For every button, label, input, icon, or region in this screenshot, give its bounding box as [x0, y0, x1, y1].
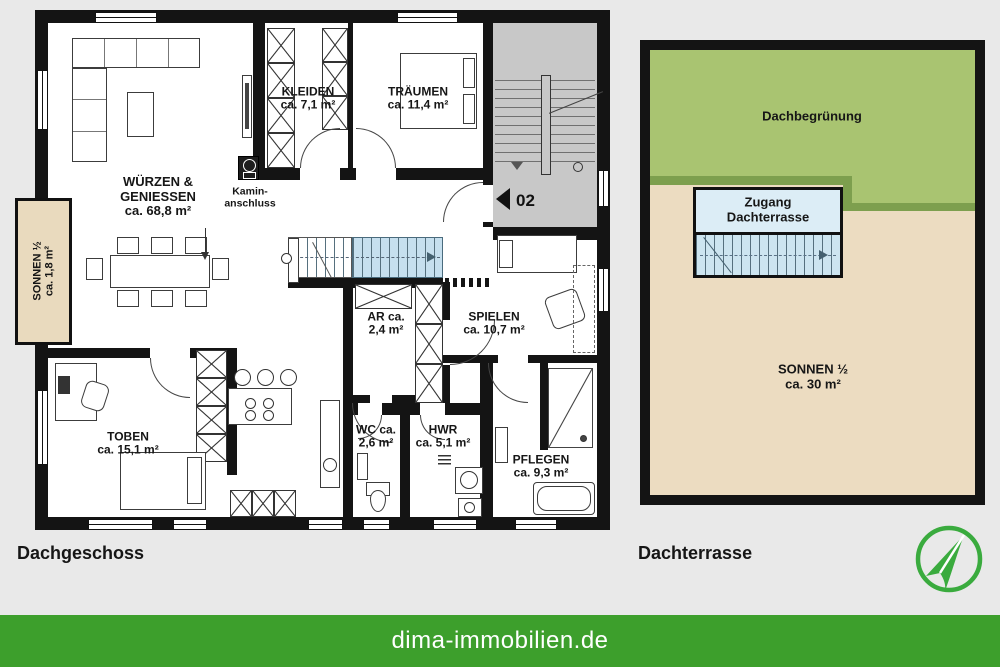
bed-pillow — [499, 240, 513, 268]
room-label-traeumen: TRÄUMEN ca. 11,4 m² — [388, 86, 449, 113]
window — [515, 519, 557, 530]
green-roof-edge — [852, 203, 975, 211]
chimney-label-line: Kamin- — [224, 186, 275, 198]
railing-tick — [461, 278, 465, 287]
bed-pillow — [463, 94, 475, 124]
flow-arrowhead — [201, 252, 209, 260]
wall-ar-bottom — [392, 395, 415, 403]
kitchen-cabinet-cell — [252, 490, 274, 517]
bar-stool — [280, 369, 297, 386]
window — [433, 519, 477, 530]
terrace-access-label: Zugang Dachterrasse — [727, 195, 809, 224]
window — [598, 170, 609, 207]
wardrobe-cell — [196, 350, 227, 378]
stove-burner — [263, 410, 274, 421]
wall-toben-top — [48, 348, 150, 358]
room-name: PFLEGEN — [513, 454, 570, 467]
wall-hall-segment — [253, 168, 300, 180]
kitchen-cabinet-cell — [230, 490, 252, 517]
green-roof-area — [852, 176, 975, 203]
room-label-spielen: SPIELEN ca. 10,7 m² — [463, 311, 524, 338]
green-roof-edge — [650, 176, 845, 185]
chimney-label-line: anschluss — [224, 198, 275, 210]
footer-bar: dima-immobilien.de — [0, 615, 1000, 667]
stove-burner — [263, 398, 274, 409]
wall-spielen-left — [443, 365, 450, 403]
bar-stool — [257, 369, 274, 386]
wardrobe-cell — [415, 364, 443, 403]
caption-dachgeschoss: Dachgeschoss — [17, 543, 144, 564]
shelf-icon — [438, 455, 451, 465]
room-label-ar: AR ca. 2,4 m² — [367, 311, 404, 338]
coffee-table — [127, 92, 154, 137]
room-label-wc: WC ca. 2,6 m² — [356, 424, 396, 451]
room-name: SPIELEN — [463, 311, 524, 324]
wall-hall-segment — [340, 168, 356, 180]
window — [88, 519, 153, 530]
wall-shower — [540, 363, 548, 450]
dining-chair — [117, 237, 139, 254]
washing-machine-drum — [460, 471, 478, 489]
desk-outline — [573, 265, 595, 353]
chimney-flue-icon — [243, 159, 256, 172]
chimney-block — [238, 156, 259, 180]
chimney-label: Kamin- anschluss — [224, 186, 275, 210]
dining-chair — [86, 258, 103, 280]
wc-sink — [357, 453, 368, 480]
wardrobe-cell — [415, 284, 443, 324]
green-roof-edge — [843, 176, 852, 211]
wall-stairwell-left — [483, 222, 493, 227]
railing-tick — [485, 278, 489, 287]
stairs-direction-arrow — [427, 252, 436, 262]
window — [173, 519, 207, 530]
stairwell-direction-arrow — [511, 162, 523, 170]
floorplan-page: 02 SONNEN ½ ca. 1,8 m² WÜRZEN & GENIESSE… — [0, 0, 1000, 667]
sofa-vertical — [72, 68, 107, 162]
wall-spielen-pflegen — [528, 355, 597, 363]
dining-table — [110, 255, 210, 288]
wall-wc-hwr — [400, 403, 410, 517]
sofa-horizontal — [72, 38, 200, 68]
window — [363, 519, 390, 530]
unit-number: 02 — [516, 191, 535, 211]
stairs-centerline — [700, 255, 835, 256]
green-roof-label-text: Dachbegrünung — [762, 109, 862, 124]
hwr-sink-basin — [464, 502, 475, 513]
room-area: ca. 5,1 m² — [416, 437, 471, 450]
room-area: 2,6 m² — [356, 437, 396, 450]
stove-burner — [245, 410, 256, 421]
terrace-label-name: SONNEN ½ — [778, 362, 848, 377]
window — [37, 390, 48, 465]
room-name: WÜRZEN & — [120, 175, 196, 190]
room-area: ca. 9,3 m² — [513, 467, 570, 480]
kitchen-tall-counter — [320, 400, 340, 488]
wall-ar-bottom — [353, 395, 370, 403]
room-area: 2,4 m² — [367, 324, 404, 337]
dining-chair — [212, 258, 229, 280]
footer-website[interactable]: dima-immobilien.de — [391, 627, 608, 655]
dining-chair — [185, 290, 207, 307]
window — [397, 12, 458, 23]
kitchen-cabinet-cell — [274, 490, 296, 517]
chimney-base-icon — [243, 172, 256, 179]
stove-burner — [245, 398, 256, 409]
railing-tick — [445, 278, 449, 287]
wardrobe-cell — [267, 28, 295, 63]
flow-arrow — [205, 228, 206, 254]
room-area: ca. 15,1 m² — [97, 444, 158, 457]
terrace-sun-label: SONNEN ½ ca. 30 m² — [778, 362, 848, 391]
room-name: WC ca. — [356, 424, 396, 437]
room-label-pflegen: PFLEGEN ca. 9,3 m² — [513, 454, 570, 481]
wall-hall-segment — [396, 168, 483, 180]
room-area: ca. 68,8 m² — [120, 204, 196, 219]
room-area: ca. 11,4 m² — [388, 99, 449, 112]
unit-entrance-arrow-icon — [496, 188, 510, 210]
room-name: GENIESSEN — [120, 190, 196, 205]
wardrobe-cell — [267, 133, 295, 168]
stairwell-stairs-left-flight — [495, 80, 541, 170]
bed-pillow — [463, 58, 475, 88]
storage-cell — [355, 284, 412, 309]
green-roof-label: Dachbegrünung — [762, 110, 862, 125]
terrace-label-area: ca. 30 m² — [778, 377, 848, 392]
tv-screen — [245, 83, 249, 129]
bed-pillow — [187, 457, 202, 504]
room-name: TRÄUMEN — [388, 86, 449, 99]
stairwell-handrail-post — [573, 162, 583, 172]
balcony-label: SONNEN ½ ca. 1,8 m² — [32, 241, 57, 300]
pc-monitor — [58, 376, 70, 394]
wardrobe-cell — [196, 406, 227, 434]
north-arrow-icon — [911, 521, 987, 597]
shower-drain — [580, 435, 587, 442]
room-name: TOBEN — [97, 431, 158, 444]
railing-tick — [477, 278, 481, 287]
railing-tick — [453, 278, 457, 287]
terrace-access-stairs — [696, 235, 840, 275]
kitchen-sink — [323, 458, 337, 472]
caption-dachterrasse: Dachterrasse — [638, 543, 752, 564]
room-label-wuerzen-geniessen: WÜRZEN & GENIESSEN ca. 68,8 m² — [120, 175, 196, 219]
kitchen-counter — [228, 388, 292, 425]
room-label-toben: TOBEN ca. 15,1 m² — [97, 431, 158, 458]
room-label-hwr: HWR ca. 5,1 m² — [416, 424, 471, 451]
wardrobe-cell — [196, 378, 227, 406]
window — [308, 519, 343, 530]
dining-chair — [151, 290, 173, 307]
window — [95, 12, 157, 23]
balcony-label-name: SONNEN ½ — [32, 241, 44, 300]
dining-chair — [117, 290, 139, 307]
wall-stairwell-left — [483, 23, 493, 185]
wardrobe-cell — [322, 28, 348, 62]
balcony-label-area: ca. 1,8 m² — [44, 241, 56, 300]
access-label-line: Zugang — [727, 195, 809, 210]
wall-spielen-left — [443, 282, 450, 320]
stairs-centerline — [290, 257, 440, 258]
room-name: HWR — [416, 424, 471, 437]
railing-tick — [469, 278, 473, 287]
bath-sink — [495, 427, 508, 463]
room-label-kleiden: KLEIDEN ca. 7,1 m² — [281, 86, 336, 113]
wall-kleiden-traeumen — [348, 23, 353, 170]
stairs-handrail-post — [281, 253, 292, 264]
dining-chair — [151, 237, 173, 254]
room-area: ca. 10,7 m² — [463, 324, 524, 337]
stairs-direction-arrow — [819, 250, 828, 260]
room-area: ca. 7,1 m² — [281, 99, 336, 112]
stairwell-spine — [541, 75, 551, 175]
window — [37, 70, 48, 130]
access-label-line: Dachterrasse — [727, 210, 809, 225]
wardrobe-cell — [415, 324, 443, 364]
wall-wc-row — [445, 403, 480, 415]
bar-stool — [234, 369, 251, 386]
room-name: AR ca. — [367, 311, 404, 324]
window — [598, 268, 609, 312]
stairwell-stairs-right-flight — [549, 80, 595, 170]
room-name: KLEIDEN — [281, 86, 336, 99]
bathtub-inner — [537, 486, 591, 511]
